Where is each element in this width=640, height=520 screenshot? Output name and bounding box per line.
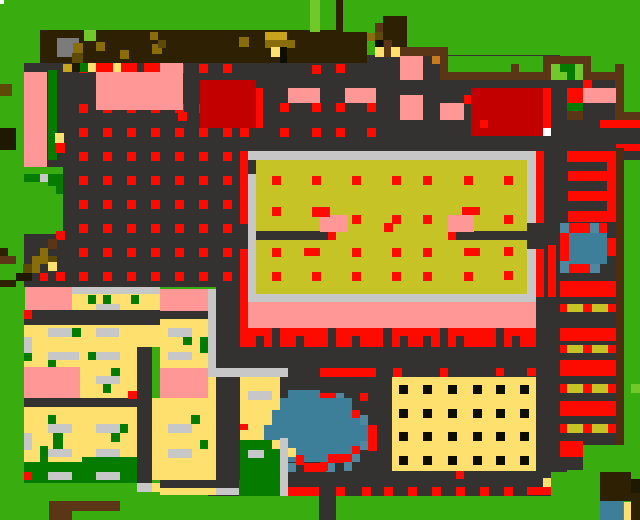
road-dot: [56, 231, 65, 240]
map-rect: [569, 264, 590, 273]
bottom-road-dot: [408, 487, 417, 496]
field-dot: [312, 272, 321, 281]
map-rect: [49, 511, 72, 520]
field-dot: [464, 272, 473, 281]
map-rect: [352, 454, 360, 462]
map-rect: [168, 424, 192, 433]
map-rect: [0, 128, 16, 150]
plaza-dot: [175, 152, 184, 161]
plaza-dot: [175, 176, 184, 185]
map-rect: [360, 441, 368, 450]
plaza-dot: [151, 224, 160, 233]
market-dot: [496, 456, 505, 465]
plaza-dot: [223, 128, 232, 137]
map-rect: [55, 133, 64, 143]
map-rect: [567, 424, 583, 433]
map-rect: [592, 424, 608, 433]
market-dot: [448, 456, 457, 465]
map-rect: [456, 231, 527, 240]
map-rect: [560, 441, 583, 457]
map-rect: [40, 446, 48, 462]
pixel-map[interactable]: [0, 0, 640, 520]
left-vertical-road: [137, 347, 152, 483]
map-rect: [72, 53, 83, 63]
map-rect: [248, 391, 272, 400]
map-rect: [624, 502, 631, 520]
bottom-road-dot: [432, 487, 441, 496]
field-dot: [392, 215, 401, 224]
map-rect: [320, 215, 348, 232]
map-rect: [527, 223, 543, 249]
field-dot: [384, 223, 393, 232]
map-rect: [527, 487, 551, 495]
corner-house: [600, 472, 631, 501]
map-rect: [82, 457, 137, 462]
map-rect: [592, 384, 608, 393]
field-dot: [272, 176, 281, 185]
map-rect: [84, 30, 96, 41]
map-rect: [567, 345, 583, 353]
map-rect: [288, 88, 320, 103]
bottom-exit-road: [319, 496, 336, 520]
forest-strip: [24, 462, 137, 483]
map-rect: [48, 472, 72, 480]
market-dot: [423, 409, 432, 418]
map-rect: [543, 478, 551, 487]
map-rect: [560, 360, 616, 376]
map-rect: [590, 223, 599, 233]
map-rect: [440, 368, 448, 377]
map-rect: [96, 376, 120, 384]
plaza-dot: [151, 248, 160, 257]
field-dot: [352, 272, 361, 281]
map-rect: [40, 273, 48, 281]
road-dot: [367, 128, 376, 137]
plaza-dot: [151, 200, 160, 209]
field-dot: [272, 207, 281, 216]
map-rect: [328, 328, 336, 347]
map-rect: [280, 398, 352, 410]
map-rect: [208, 289, 216, 368]
plaza-dot: [223, 248, 232, 257]
field-dot: [312, 176, 321, 185]
plaza-dot: [175, 248, 184, 257]
map-rect: [0, 248, 8, 256]
map-rect: [400, 56, 423, 80]
map-rect: [590, 264, 600, 273]
plaza-dot: [103, 224, 112, 233]
map-rect: [158, 40, 166, 48]
map-rect: [88, 63, 96, 72]
map-rect: [336, 32, 367, 63]
map-rect: [272, 410, 360, 425]
map-rect: [160, 368, 208, 398]
plaza-dot: [127, 176, 136, 185]
map-rect: [599, 223, 607, 233]
field-dot: [392, 248, 401, 257]
map-rect: [567, 72, 575, 80]
map-rect: [560, 401, 616, 416]
map-rect: [583, 88, 616, 103]
map-rect: [96, 328, 119, 337]
map-rect: [168, 328, 192, 337]
bottom-road-dot: [336, 487, 345, 496]
map-rect: [567, 111, 583, 120]
plaza-dot: [103, 128, 112, 137]
map-rect: [400, 336, 408, 347]
map-rect: [56, 182, 63, 194]
map-rect: [288, 463, 296, 472]
map-rect: [111, 368, 120, 376]
plaza-dot: [103, 200, 112, 209]
map-rect: [375, 47, 384, 57]
map-rect: [120, 424, 128, 433]
map-rect: [144, 63, 160, 72]
map-rect: [631, 479, 640, 493]
map-rect: [0, 280, 16, 287]
map-rect: [256, 88, 263, 128]
map-rect: [536, 249, 544, 297]
plaza-dot: [175, 224, 184, 233]
bottom-road-dot: [480, 487, 489, 496]
map-rect: [72, 287, 160, 294]
map-rect: [32, 256, 48, 264]
plaza-dot: [199, 64, 208, 73]
map-rect: [567, 384, 583, 393]
road-dot: [312, 103, 321, 112]
market-dot: [520, 456, 529, 465]
map-rect: [280, 47, 287, 63]
map-rect: [120, 50, 129, 59]
map-rect: [63, 64, 72, 72]
map-rect: [320, 368, 376, 377]
map-rect: [73, 43, 83, 53]
pink-band: [248, 302, 536, 328]
map-rect: [160, 488, 216, 495]
map-rect: [48, 262, 57, 271]
field-dot: [504, 247, 513, 256]
map-rect: [208, 377, 216, 398]
map-rect: [160, 480, 216, 488]
yellow-house: [152, 398, 216, 480]
map-rect: [352, 446, 360, 454]
plaza-dot: [103, 272, 112, 281]
map-rect: [160, 63, 183, 72]
map-rect: [600, 120, 640, 128]
market-dot: [399, 385, 408, 394]
field-dot: [423, 248, 432, 257]
map-rect: [96, 424, 120, 433]
map-rect: [248, 450, 264, 458]
plaza-dot: [175, 128, 184, 137]
road-dot: [336, 103, 345, 112]
bottom-path: [49, 501, 120, 511]
road-dot: [56, 272, 65, 281]
map-rect: [352, 336, 360, 347]
market-dot: [448, 432, 457, 441]
plaza-dot: [79, 176, 88, 185]
road-dot: [280, 128, 289, 137]
map-rect: [560, 328, 616, 341]
field-dot: [504, 215, 513, 224]
plaza-dot: [199, 272, 208, 281]
field-dot: [352, 215, 361, 224]
map-rect: [560, 223, 569, 233]
map-rect: [352, 410, 360, 418]
map-rect: [48, 415, 56, 424]
map-rect: [560, 233, 569, 261]
map-rect: [239, 37, 249, 47]
plaza-dot: [127, 200, 136, 209]
map-rect: [240, 151, 248, 224]
market-dot: [473, 456, 482, 465]
map-rect: [607, 238, 616, 256]
map-rect: [48, 449, 72, 457]
plaza-dot: [79, 200, 88, 209]
map-rect: [40, 174, 48, 182]
plaza-dot: [199, 176, 208, 185]
field-dot: [304, 248, 320, 256]
market-dot: [496, 432, 505, 441]
map-rect: [328, 231, 336, 240]
market-dot: [473, 409, 482, 418]
map-rect: [96, 42, 105, 51]
plaza-dot: [79, 104, 88, 113]
map-rect: [24, 337, 32, 347]
plaza-dot: [175, 272, 184, 281]
map-rect: [96, 449, 120, 457]
map-rect: [543, 56, 591, 64]
map-rect: [111, 433, 120, 442]
market-dot: [448, 385, 457, 394]
pink-building-left: [24, 72, 47, 167]
map-rect: [536, 151, 544, 223]
tree-column: [616, 148, 624, 445]
map-rect: [24, 367, 80, 398]
field-dot: [272, 272, 281, 281]
bottom-road-dot: [362, 487, 371, 496]
map-rect: [569, 223, 590, 233]
map-rect: [448, 215, 474, 232]
plaza-dot: [103, 248, 112, 257]
map-rect: [96, 63, 113, 72]
map-rect: [312, 207, 330, 217]
map-rect: [583, 64, 591, 80]
plaza-dot: [223, 176, 232, 185]
map-rect: [560, 281, 616, 297]
map-rect: [137, 483, 152, 492]
map-rect: [548, 245, 556, 297]
map-rect: [423, 336, 431, 347]
map-rect: [527, 368, 536, 376]
map-rect: [288, 390, 320, 398]
plaza-dot: [199, 152, 208, 161]
map-rect: [239, 480, 280, 496]
map-rect: [296, 455, 304, 465]
map-rect: [103, 384, 111, 393]
market-dot: [448, 409, 457, 418]
map-rect: [24, 174, 40, 182]
map-rect: [615, 64, 624, 112]
red-building-right: [471, 88, 543, 136]
plaza-dot: [127, 248, 136, 257]
plaza-dot: [151, 128, 160, 137]
pool: [569, 233, 607, 264]
map-rect: [383, 328, 392, 347]
center-vertical-road: [216, 368, 240, 480]
market-dot: [473, 385, 482, 394]
map-rect: [265, 32, 287, 40]
bottom-road-dot: [456, 487, 465, 496]
map-rect: [360, 393, 368, 401]
market-dot: [423, 385, 432, 394]
map-rect: [496, 328, 504, 347]
map-rect: [72, 328, 81, 337]
market-field: [392, 377, 536, 471]
map-rect: [88, 295, 96, 304]
map-rect: [375, 32, 383, 40]
map-rect: [16, 273, 32, 281]
map-rect: [24, 310, 32, 319]
map-rect: [96, 472, 120, 480]
map-rect: [591, 72, 615, 80]
field-dot: [464, 207, 480, 215]
field-dot: [504, 176, 513, 185]
field-dot: [392, 176, 401, 185]
map-rect: [368, 425, 377, 451]
map-rect: [512, 336, 520, 347]
map-rect: [567, 103, 583, 111]
pink-building-top: [96, 72, 183, 110]
plaza-dot: [199, 200, 208, 209]
field-dot: [423, 176, 432, 185]
plaza-dot: [223, 224, 232, 233]
map-rect: [48, 424, 72, 433]
road-dot: [178, 112, 187, 121]
map-rect: [23, 264, 32, 273]
road-dot: [312, 128, 321, 137]
map-rect: [511, 64, 519, 72]
market-dot: [496, 409, 505, 418]
map-rect: [183, 337, 192, 345]
map-rect: [543, 64, 551, 80]
map-rect: [137, 63, 144, 72]
map-rect: [631, 493, 640, 520]
bottom-road-dot: [504, 487, 513, 496]
plaza-dot: [79, 224, 88, 233]
path: [400, 47, 448, 56]
field-dot: [504, 271, 513, 280]
plaza-dot: [199, 224, 208, 233]
field-dot: [423, 215, 432, 224]
map-rect: [191, 415, 200, 424]
map-rect: [103, 295, 111, 304]
plaza-dot: [127, 128, 136, 137]
map-rect: [208, 368, 288, 377]
map-rect: [288, 487, 319, 496]
field-dot: [464, 248, 480, 256]
plaza-dot: [151, 176, 160, 185]
map-rect: [168, 449, 192, 458]
plaza-dot: [199, 128, 208, 137]
field-dot: [392, 272, 401, 281]
road-dot: [367, 103, 376, 112]
plaza-dot: [151, 272, 160, 281]
map-rect: [216, 287, 240, 347]
map-rect: [24, 472, 32, 480]
map-rect: [272, 328, 280, 347]
map-rect: [440, 103, 464, 120]
market-dot: [399, 409, 408, 418]
map-rect: [80, 63, 88, 72]
red-building: [200, 80, 256, 128]
map-rect: [40, 248, 48, 256]
plaza-dot: [151, 152, 160, 161]
map-rect: [560, 261, 569, 273]
map-rect: [448, 231, 456, 240]
map-rect: [367, 33, 375, 41]
map-rect: [88, 352, 96, 360]
road-dot: [240, 128, 249, 137]
field-dot: [464, 176, 473, 185]
map-rect: [543, 88, 551, 128]
map-rect: [393, 368, 402, 377]
map-rect: [150, 32, 158, 40]
field-dot: [352, 248, 361, 257]
bottom-road-dot: [384, 487, 393, 496]
market-dot: [399, 432, 408, 441]
map-rect: [256, 231, 328, 240]
yellow-house: [24, 325, 160, 347]
map-rect: [160, 289, 208, 311]
map-rect: [336, 0, 343, 32]
map-rect: [96, 304, 120, 310]
road-dot: [336, 128, 345, 137]
map-rect: [200, 337, 208, 347]
road-dot: [336, 64, 345, 73]
map-rect: [456, 471, 464, 479]
map-rect: [152, 483, 160, 492]
map-rect: [344, 462, 352, 471]
map-rect: [567, 88, 583, 103]
map-rect: [113, 63, 121, 72]
map-rect: [131, 295, 139, 304]
map-rect: [200, 440, 208, 449]
map-rect: [56, 143, 65, 153]
cursor-dot: [0, 0, 4, 4]
plaza-dot: [79, 248, 88, 257]
map-rect: [48, 352, 79, 360]
map-rect: [400, 95, 423, 120]
market-dot: [423, 432, 432, 441]
market-dot: [496, 385, 505, 394]
market-dot: [423, 456, 432, 465]
map-rect: [121, 63, 137, 72]
map-rect: [48, 239, 57, 249]
plaza-dot: [199, 248, 208, 257]
plaza-dot: [103, 152, 112, 161]
map-rect: [24, 433, 32, 450]
map-rect: [567, 304, 583, 312]
map-rect: [288, 448, 296, 457]
map-rect: [440, 56, 448, 72]
map-rect: [280, 438, 288, 496]
map-rect: [216, 488, 240, 495]
map-rect: [480, 120, 488, 128]
map-rect: [543, 128, 551, 136]
map-rect: [560, 64, 575, 72]
path: [440, 72, 551, 80]
